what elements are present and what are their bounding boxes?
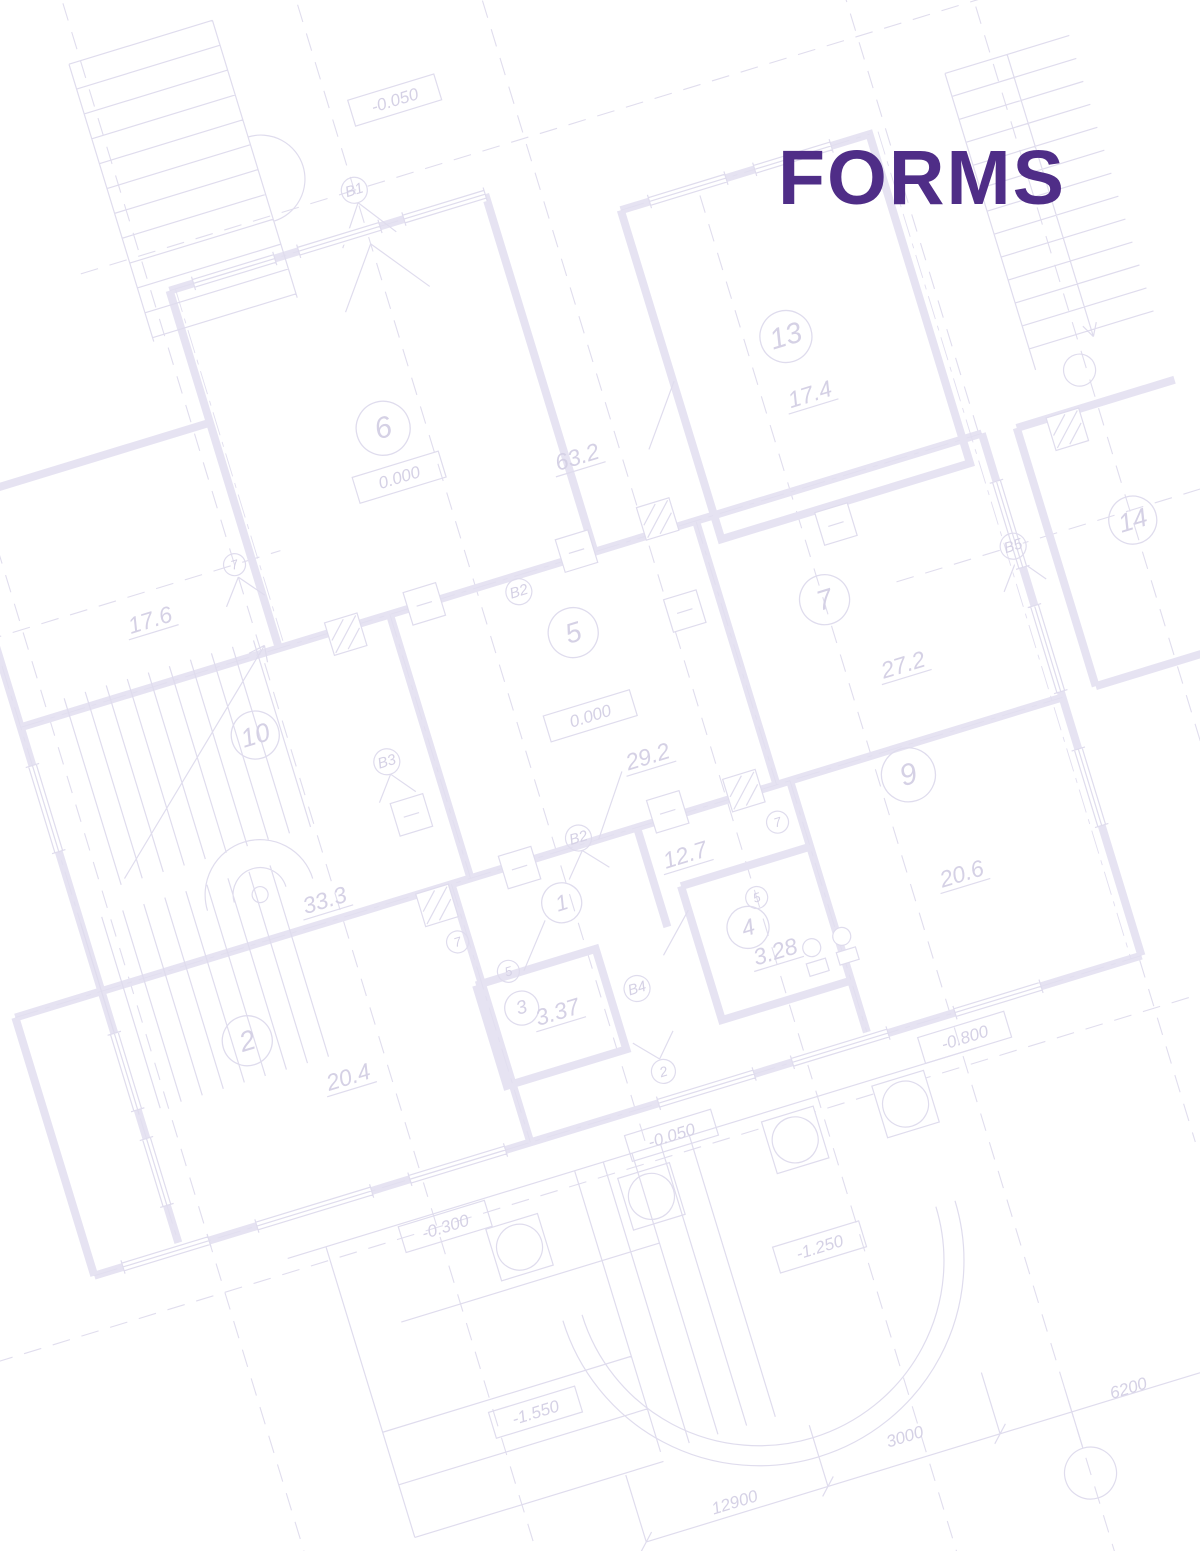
svg-text:1: 1 bbox=[552, 889, 571, 916]
svg-text:-0.800: -0.800 bbox=[939, 1022, 991, 1054]
svg-text:3: 3 bbox=[514, 996, 531, 1019]
svg-text:7: 7 bbox=[229, 556, 241, 573]
svg-text:6: 6 bbox=[370, 410, 396, 447]
svg-text:B4: B4 bbox=[626, 978, 649, 1000]
svg-text:B1: B1 bbox=[343, 179, 366, 201]
svg-text:-0.050: -0.050 bbox=[646, 1120, 698, 1152]
svg-text:-0.050: -0.050 bbox=[369, 84, 421, 116]
svg-text:7: 7 bbox=[452, 933, 464, 950]
svg-text:7: 7 bbox=[813, 582, 838, 617]
svg-text:6200: 6200 bbox=[1108, 1374, 1150, 1403]
svg-text:3000: 3000 bbox=[884, 1422, 926, 1451]
svg-text:B3: B3 bbox=[376, 751, 399, 773]
svg-text:13: 13 bbox=[766, 316, 806, 356]
svg-text:-1.250: -1.250 bbox=[794, 1231, 846, 1263]
svg-text:5: 5 bbox=[751, 889, 763, 906]
svg-text:14: 14 bbox=[1115, 502, 1151, 539]
svg-text:7: 7 bbox=[772, 814, 784, 831]
svg-text:2: 2 bbox=[656, 1063, 669, 1081]
page: 61357109124314B1B2B2B3B4B577755217.663.2… bbox=[0, 0, 1200, 1551]
svg-text:12900: 12900 bbox=[709, 1486, 760, 1518]
svg-text:5: 5 bbox=[561, 615, 585, 649]
svg-text:4: 4 bbox=[738, 913, 758, 942]
page-title: FORMS bbox=[778, 140, 1066, 217]
blueprint-generated bbox=[0, 0, 1200, 1551]
svg-text:0.000: 0.000 bbox=[376, 462, 423, 493]
svg-text:-1.550: -1.550 bbox=[510, 1396, 562, 1428]
svg-text:B2: B2 bbox=[508, 581, 531, 603]
blueprint-background: 61357109124314B1B2B2B3B4B577755217.663.2… bbox=[0, 0, 1200, 1551]
blueprint-details bbox=[0, 42, 1200, 1551]
svg-text:9: 9 bbox=[896, 757, 922, 794]
svg-text:10: 10 bbox=[237, 716, 274, 753]
svg-text:0.000: 0.000 bbox=[567, 701, 614, 732]
svg-text:2: 2 bbox=[234, 1024, 259, 1059]
